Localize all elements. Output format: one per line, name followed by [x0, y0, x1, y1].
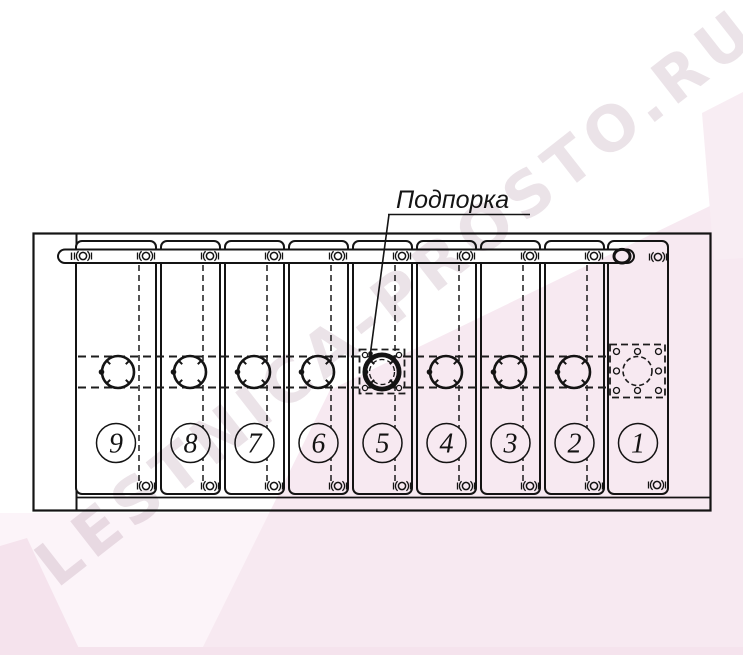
- panel-number-1: 1: [631, 429, 645, 460]
- panel-number-9: 9: [109, 429, 123, 460]
- panel-number-5: 5: [376, 429, 390, 460]
- support-marker: [360, 350, 405, 394]
- panel-number-4: 4: [440, 429, 454, 460]
- panel-number-2: 2: [568, 429, 582, 460]
- rail-end-cap: [614, 249, 630, 263]
- panel-number-7: 7: [248, 429, 263, 460]
- assembly-drawing: 9 8 7 6 5 4 3 2 1: [0, 0, 743, 655]
- support-callout-label: Подпорка: [396, 186, 509, 214]
- panel-number-6: 6: [312, 429, 326, 460]
- panel-number-badges: 9 8 7 6 5 4 3 2 1: [97, 424, 658, 463]
- panel-number-8: 8: [184, 429, 198, 460]
- panel-number-3: 3: [503, 429, 518, 460]
- technical-drawing-page: 9 8 7 6 5 4 3 2 1: [0, 0, 743, 655]
- mounting-plate: [610, 345, 665, 398]
